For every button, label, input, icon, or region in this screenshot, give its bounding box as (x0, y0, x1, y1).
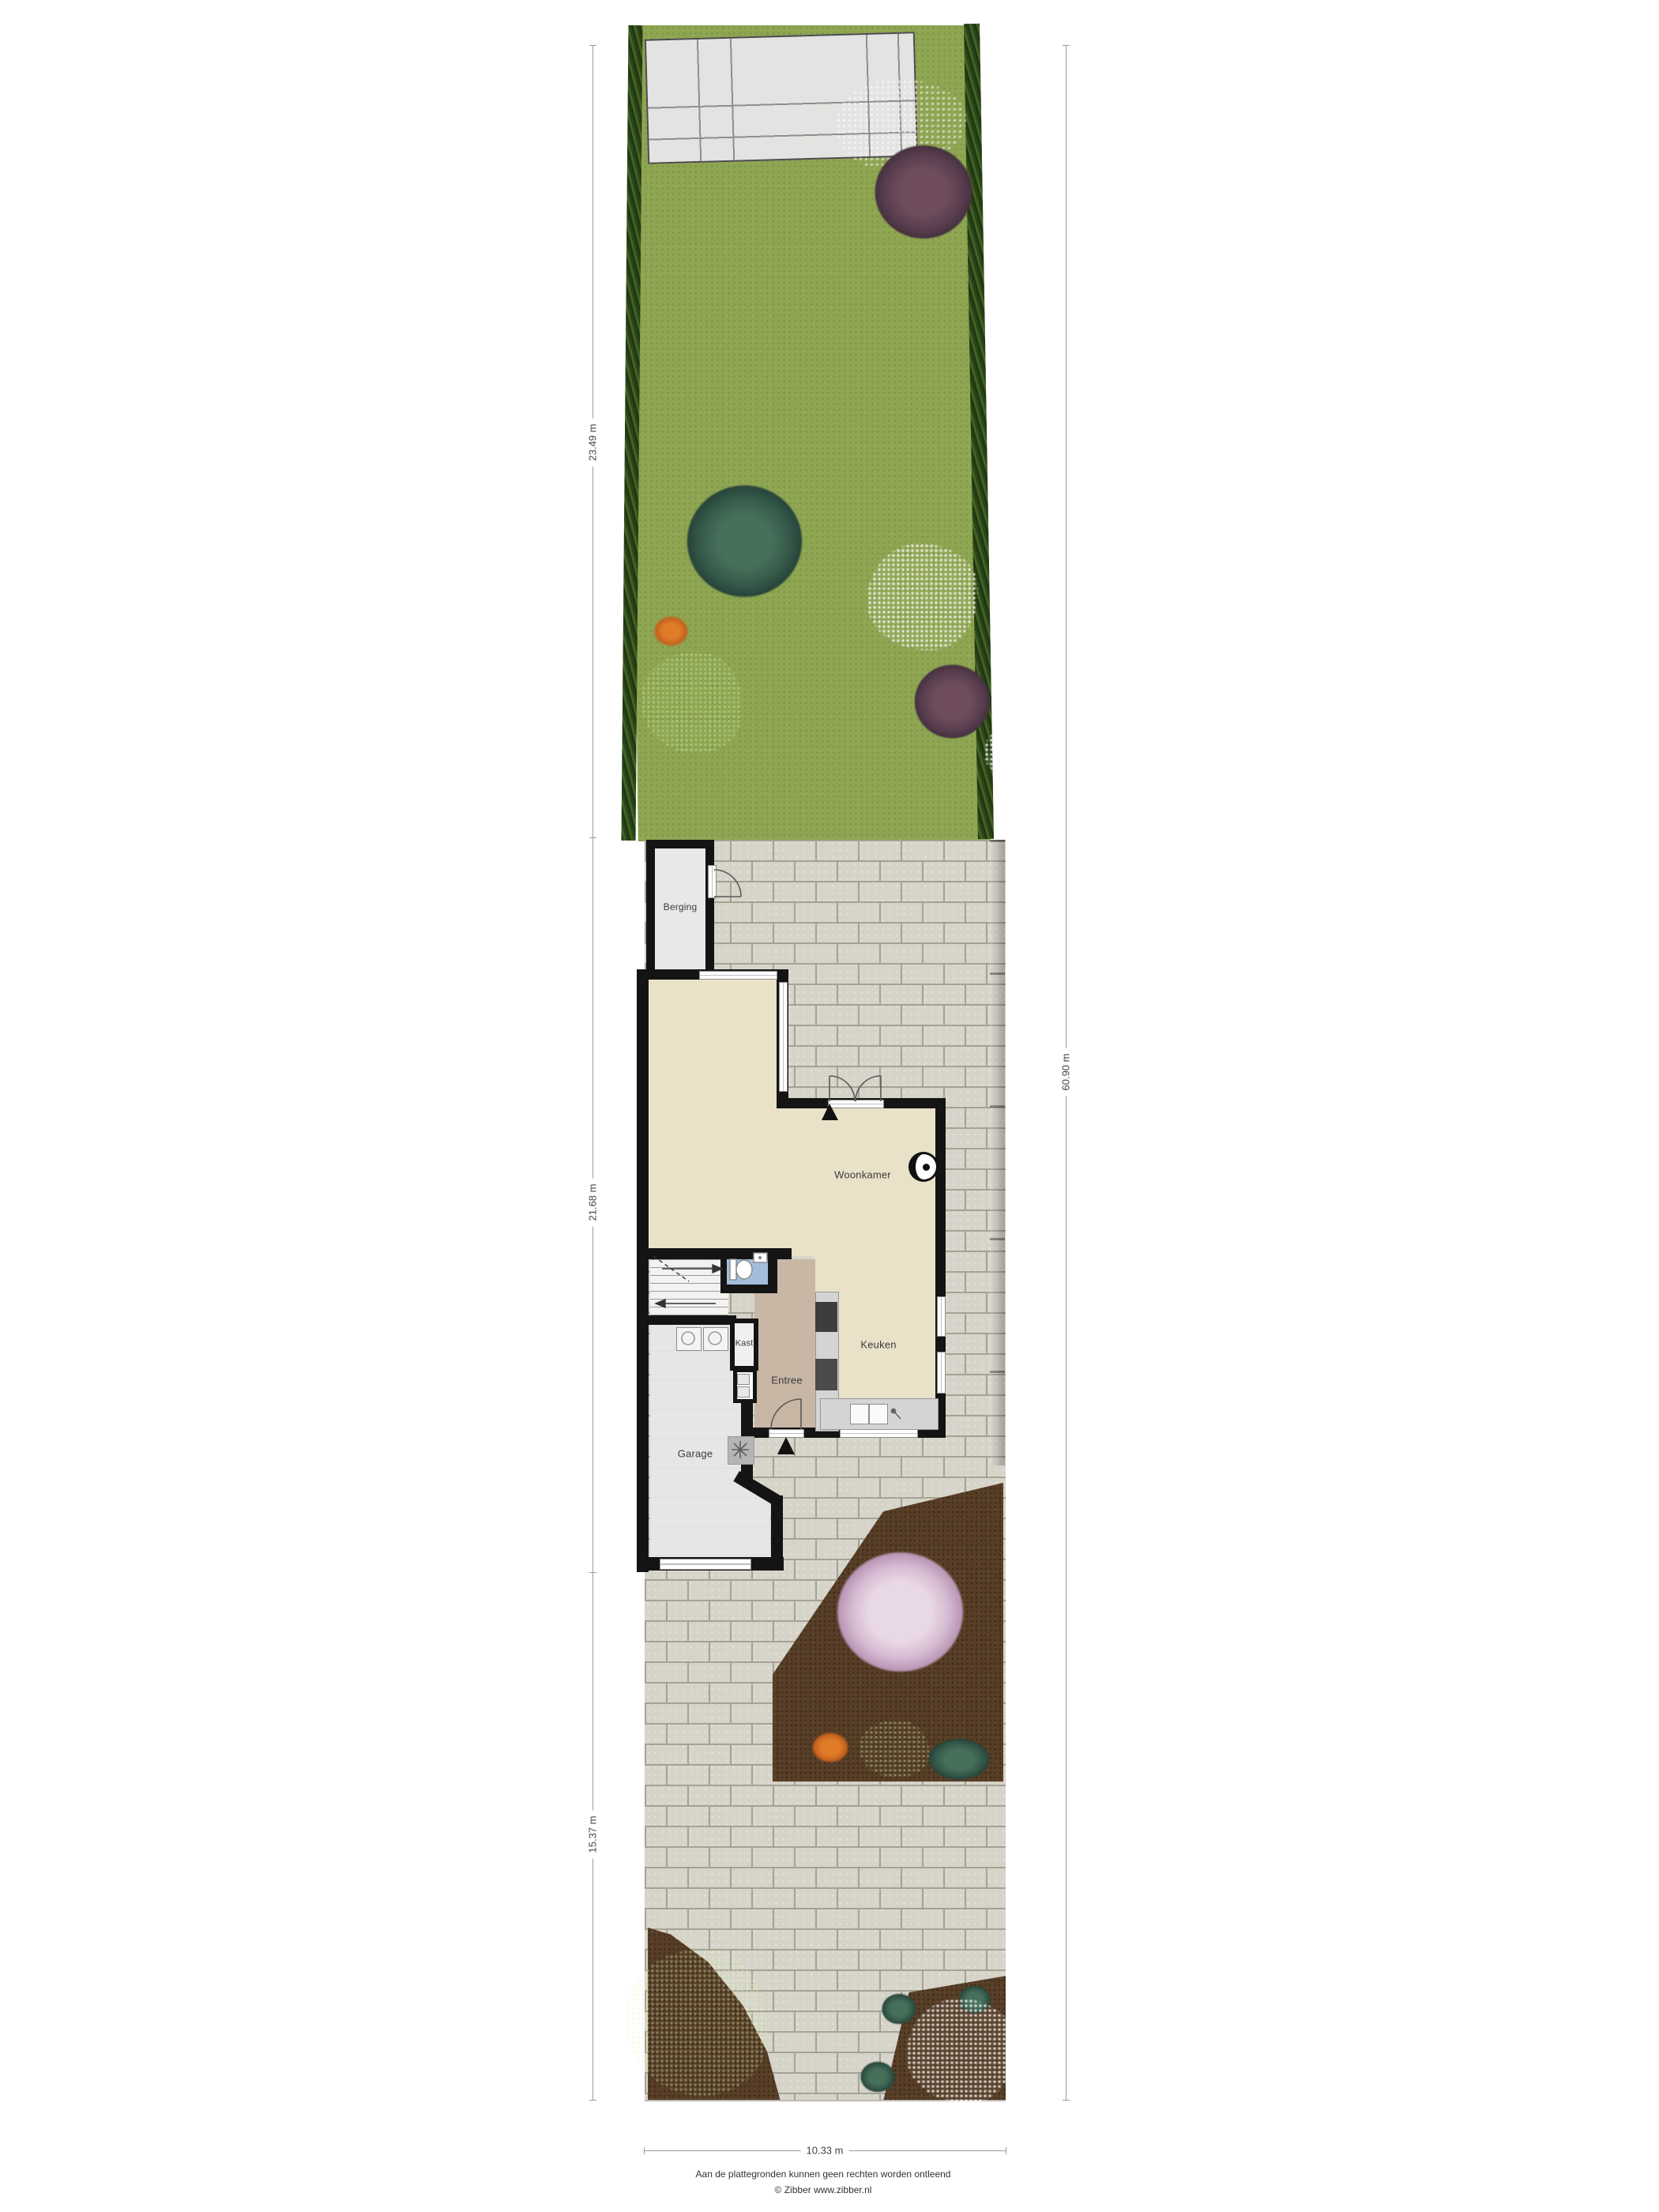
meter-unit-2 (737, 1386, 750, 1398)
washer-1 (676, 1327, 702, 1351)
washer-2 (703, 1327, 728, 1351)
dim-label-house-depth: 21.68 m (585, 1179, 601, 1227)
window-kitchen-right-1 (937, 1296, 946, 1337)
label-woonkamer: Woonkamer (834, 1170, 891, 1180)
staircase (650, 1252, 728, 1318)
label-entree: Entree (771, 1375, 803, 1386)
plant-bottom-right-1 (878, 1991, 920, 2027)
wall-left (637, 969, 649, 1572)
dim-label-total-depth: 60.90 m (1058, 1048, 1074, 1097)
dim-tick (589, 1572, 596, 1573)
credit-line: © Zibber www.zibber.nl (696, 2182, 951, 2198)
dim-label-plot-width: 10.33 m (801, 2142, 849, 2159)
boiler-unit (728, 1436, 754, 1465)
white-blossom-right (867, 544, 978, 650)
dim-label-garden-depth: 23.49 m (585, 419, 601, 467)
white-shrub-bottom-right (907, 1999, 1016, 2103)
bush-bottom-left (626, 1950, 767, 2096)
dim-tick (589, 837, 596, 838)
plant-bottom-right-3 (857, 2059, 898, 2095)
berging-door-opening (708, 865, 717, 898)
window-kitchen-right-2 (937, 1352, 946, 1394)
meter-unit-1 (737, 1374, 750, 1385)
dim-tick (644, 2147, 645, 2154)
tree-mid-left (675, 474, 814, 608)
french-door-opening (828, 1100, 884, 1108)
dim-tick (1063, 2100, 1070, 2101)
dim-tick (1063, 45, 1070, 46)
plum-bush-right (907, 657, 998, 746)
site-plan-canvas: Berging Woonkamer Keuken Entree Kast Gar… (0, 0, 1659, 2212)
garage-door (660, 1559, 751, 1570)
blossom-shrub-bed (823, 1539, 977, 1685)
floor-bay (649, 978, 781, 1108)
green-shrub-bed-1 (860, 1721, 929, 1777)
disclaimer-line: Aan de plattegronden kunnen geen rechten… (696, 2166, 951, 2182)
dim-tick (1006, 2147, 1006, 2154)
green-shrub-bed-2 (923, 1735, 995, 1784)
label-garage: Garage (678, 1449, 713, 1459)
kitchen-appliance-1 (815, 1302, 837, 1332)
orange-shrub-bed (807, 1729, 853, 1766)
wall-wc-bottom (720, 1285, 777, 1293)
label-berging: Berging (664, 902, 698, 912)
orange-shrub-left (649, 612, 693, 650)
window-bay-right (779, 982, 788, 1092)
kitchen-sink-right (869, 1404, 888, 1424)
front-door-opening (769, 1429, 804, 1438)
fence-right (990, 840, 1005, 1465)
window-kitchen-front (840, 1429, 918, 1438)
dim-label-driveway-depth: 15.37 m (585, 1811, 601, 1859)
wall-stairs-bottom (637, 1315, 736, 1325)
stove-fixture (908, 1152, 939, 1182)
floor-entree-mid (792, 1259, 815, 1433)
floor-woonkamer (649, 1098, 938, 1256)
footer-disclaimer: Aan de plattegronden kunnen geen rechten… (696, 2166, 951, 2199)
green-bush-left (641, 653, 743, 754)
dim-tick (589, 45, 596, 46)
dim-tick (589, 2100, 596, 2101)
kitchen-appliance-2 (815, 1359, 837, 1390)
wall-garage-right-lower (771, 1495, 783, 1571)
window-bay-top (699, 971, 777, 980)
kitchen-sink-left (850, 1404, 869, 1424)
small-twig-right (984, 733, 1010, 771)
label-kast: Kast (735, 1340, 754, 1349)
plum-tree-top (865, 136, 982, 248)
label-keuken: Keuken (860, 1340, 896, 1350)
